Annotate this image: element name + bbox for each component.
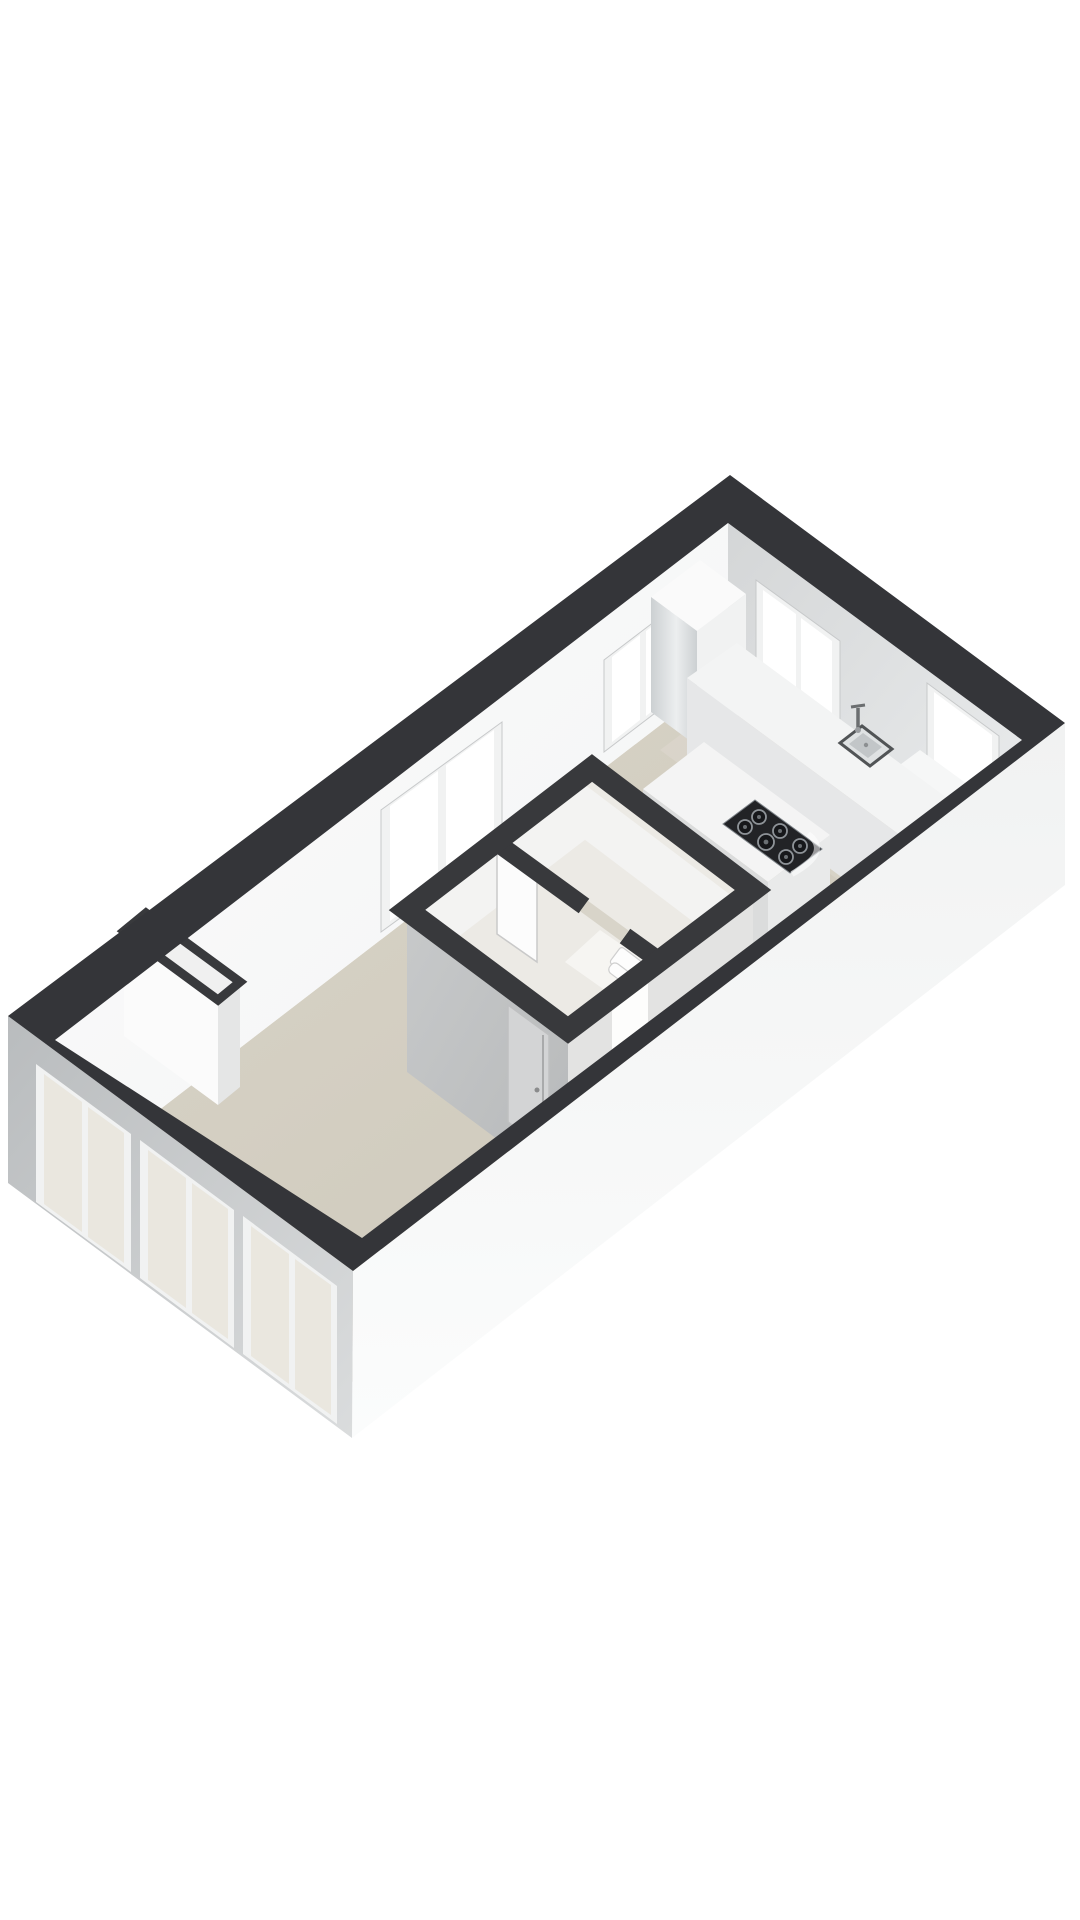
window-pane xyxy=(192,1183,228,1339)
window-pane xyxy=(88,1107,124,1263)
door-handle xyxy=(535,1088,540,1093)
floorplan-render-canvas xyxy=(0,0,1080,1920)
sink-drain xyxy=(864,743,868,747)
floorplan-3d-svg xyxy=(0,0,1080,1920)
window-pane xyxy=(295,1259,331,1415)
